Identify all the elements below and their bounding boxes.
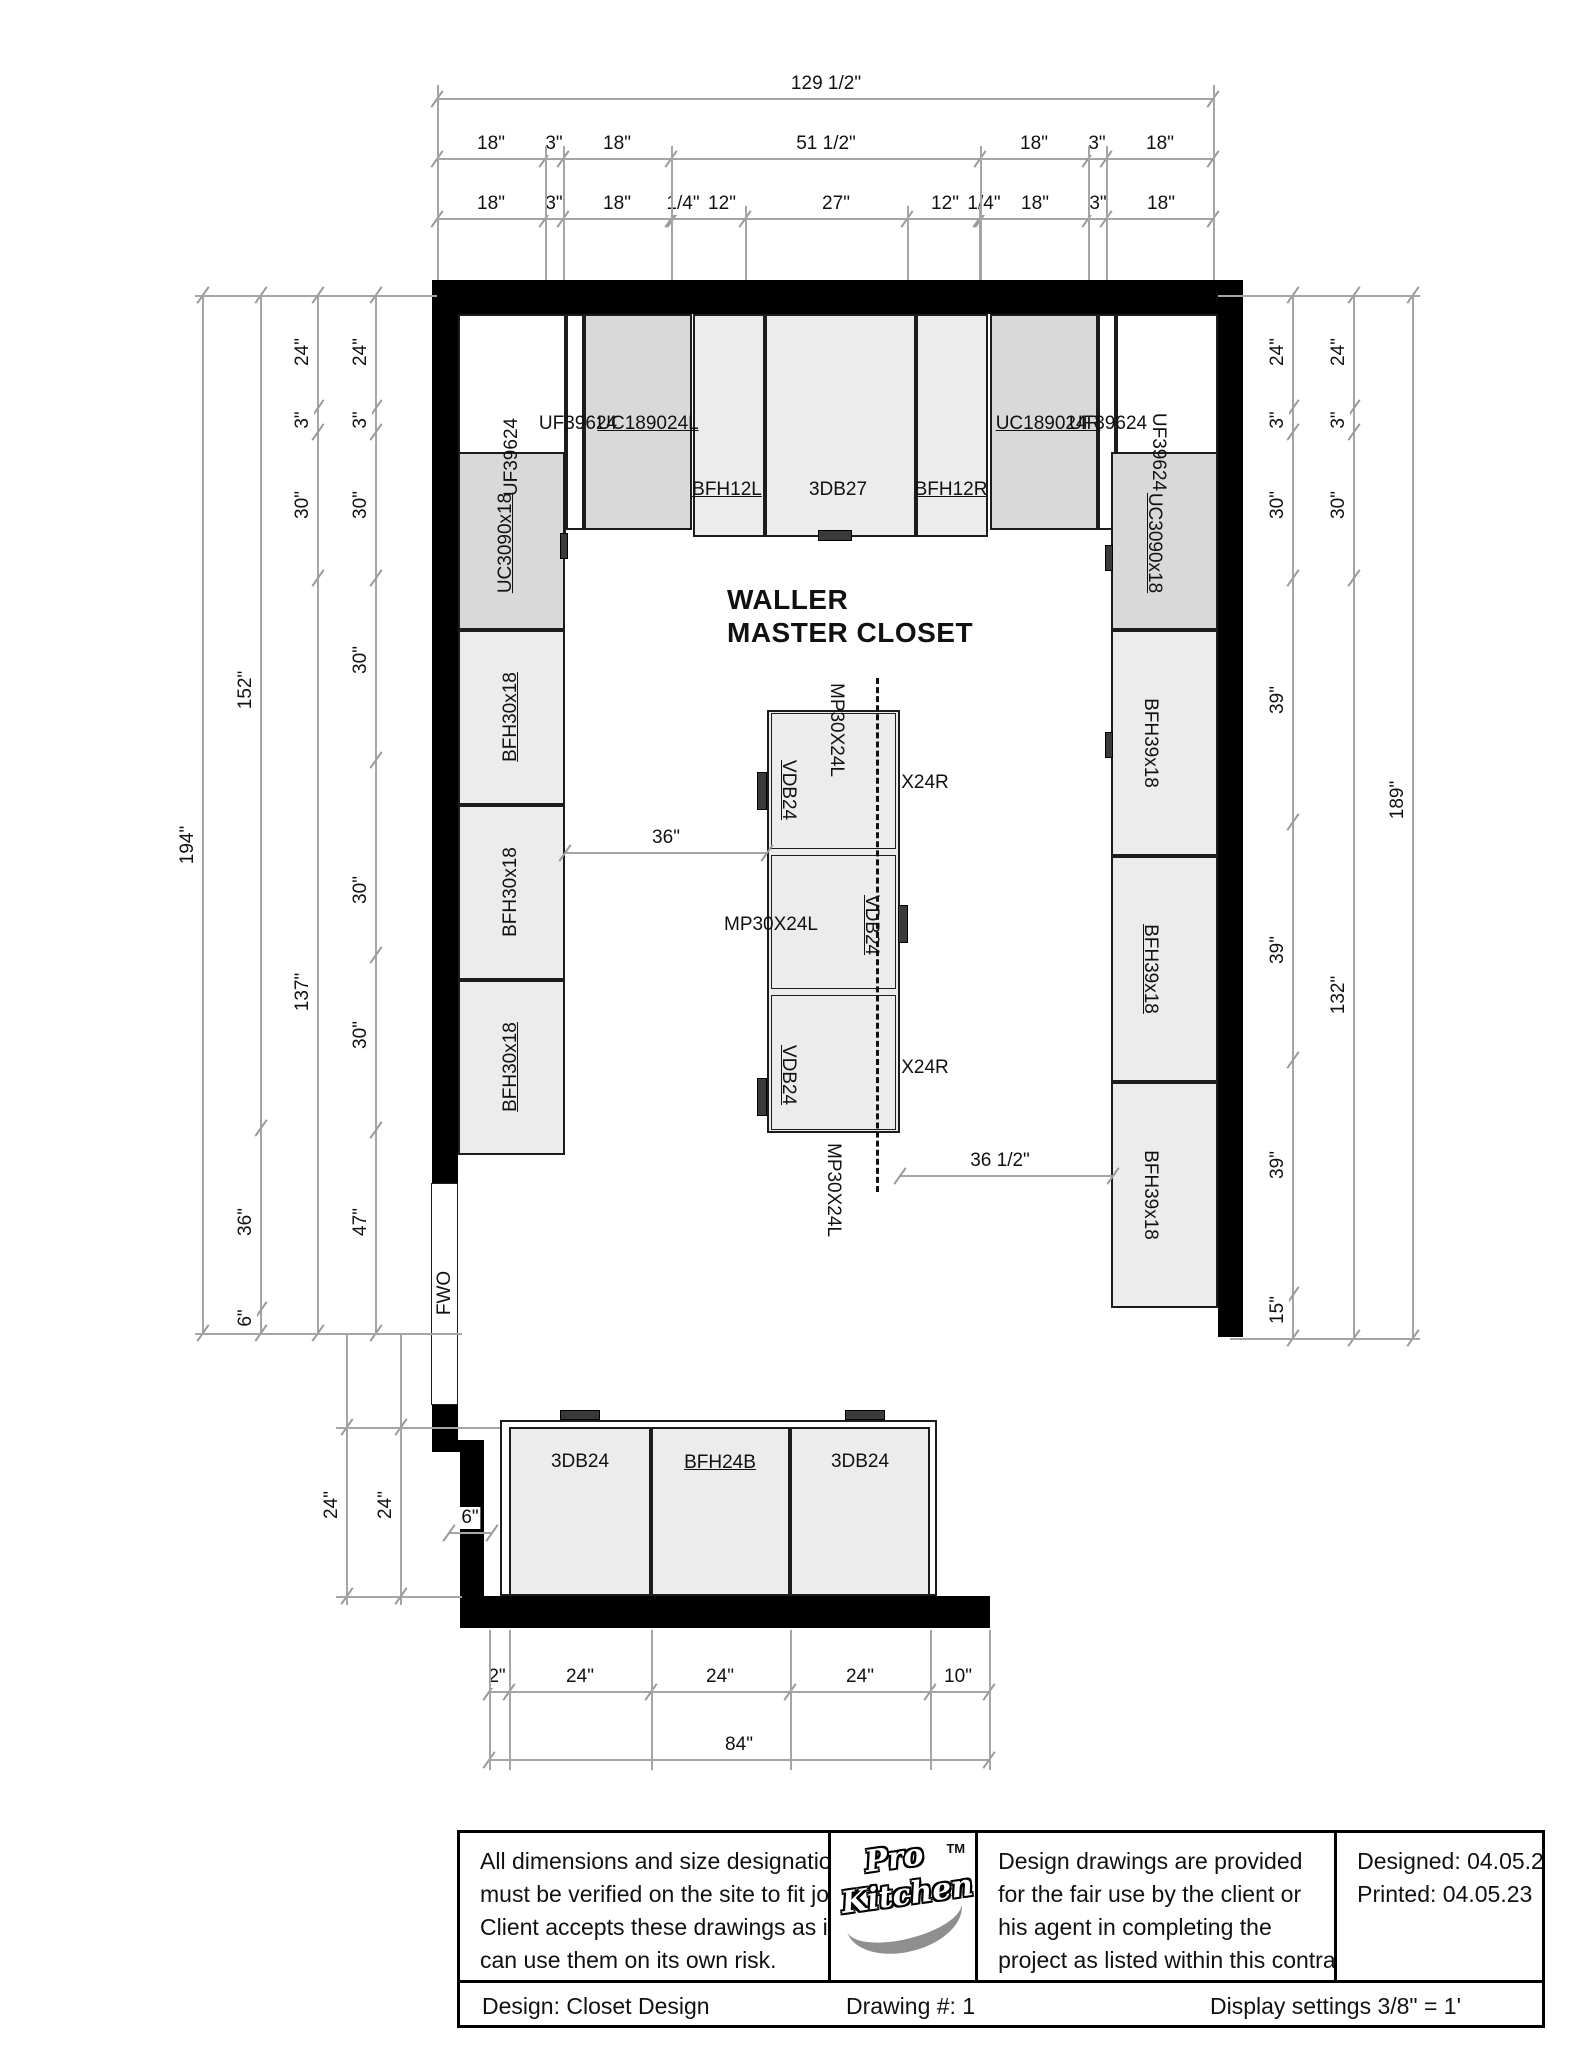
dimension-label: 10" — [942, 1666, 974, 1688]
dimension-label: 18" — [601, 193, 633, 215]
cabinet-BFH39x18-1 — [1111, 630, 1218, 856]
extension-line — [745, 206, 747, 280]
extension-line — [930, 1630, 932, 1770]
drawing-number: Drawing #: 1 — [846, 1993, 975, 2020]
dimension-label: 18" — [475, 133, 507, 155]
extension-line — [671, 146, 673, 280]
cabinet-label: BFH39x18 — [1139, 924, 1161, 1014]
cabinet-label: BFH39x18 — [1139, 1150, 1161, 1240]
dimension-label: 39" — [1267, 934, 1289, 966]
cabinet-label: X24R — [901, 1057, 949, 1079]
closet-floor-plan: UF39624UC189024LUC189024RUF39624BFH12L3D… — [0, 0, 1583, 2048]
disclaimer-text: All dimensions and size designations mus… — [460, 1833, 828, 1977]
dimension-line — [489, 1759, 989, 1761]
extension-line — [989, 1630, 991, 1770]
disclaimer-line: All dimensions and size designations — [480, 1845, 828, 1878]
dimension-label: 24" — [1328, 336, 1350, 368]
cabinet-BFH39x18-2 — [1111, 856, 1218, 1082]
logo-text-pro: Pro — [863, 1837, 926, 1880]
dimension-label: 30" — [350, 644, 372, 676]
cabinet-handle — [1105, 732, 1113, 758]
extension-line — [195, 295, 437, 297]
wall — [460, 1596, 990, 1628]
dimension-label: 3" — [292, 409, 314, 430]
cabinet-label: 3DB24 — [551, 1451, 609, 1473]
cabinet-label: UC3090x18 — [495, 493, 517, 593]
title-block: All dimensions and size designations mus… — [457, 1830, 1545, 2028]
dimension-label: 3" — [1328, 409, 1350, 430]
dimension-label: 24" — [564, 1666, 596, 1688]
extension-line — [1218, 295, 1420, 297]
printed-date: Printed: 04.05.23 — [1357, 1878, 1542, 1911]
dimension-label: 24" — [1267, 336, 1289, 368]
room-title: WALLER MASTER CLOSET — [727, 583, 973, 649]
dimension-label: 47" — [350, 1206, 372, 1238]
dimension-label: 12" — [706, 193, 738, 215]
cabinet-label: MP30X24L — [825, 683, 847, 777]
cabinet-BFH39x18-3 — [1111, 1082, 1218, 1308]
dimension-label: 6" — [235, 1307, 257, 1328]
dimension-label: 36" — [235, 1206, 257, 1238]
dimension-label: 36" — [650, 827, 682, 849]
extension-line — [545, 146, 547, 280]
dimension-label: 15" — [1267, 1294, 1289, 1326]
dimension-line — [1412, 295, 1414, 1338]
dimension-label: 189" — [1387, 779, 1409, 821]
cabinet-label: MP30X24L — [724, 914, 818, 936]
dimension-line — [437, 158, 1213, 160]
dimension-label: 30" — [350, 489, 372, 521]
dimension-label: 1/4" — [965, 193, 1002, 215]
cabinet-label: BFH30x18 — [500, 1022, 522, 1112]
extension-line — [489, 1630, 491, 1770]
wall — [1218, 280, 1243, 1337]
disclaimer-line: can use them on its own risk. — [480, 1944, 828, 1977]
wall — [432, 280, 1243, 314]
designed-date: Designed: 04.05.2 — [1357, 1845, 1542, 1878]
dimension-label: 137" — [292, 971, 314, 1013]
dimension-label: 1/4" — [664, 193, 701, 215]
cabinet-label: VDB24 — [777, 760, 799, 820]
title-block-row1: All dimensions and size designations mus… — [460, 1833, 1542, 1980]
cabinet-label: BFH30x18 — [500, 847, 522, 937]
extension-line — [563, 146, 565, 280]
dimension-line — [375, 295, 377, 1333]
dimension-label: 3" — [1086, 133, 1107, 155]
extension-line — [336, 1596, 462, 1598]
extension-line — [979, 206, 981, 280]
provision-line: his agent in completing the — [998, 1911, 1334, 1944]
cabinet-label: UC189024L — [597, 413, 698, 435]
cabinet-label: UF39624 — [1069, 413, 1147, 435]
dimension-line — [1353, 295, 1355, 1338]
dimension-line — [449, 1532, 492, 1534]
cabinet-label: BFH39x18 — [1139, 698, 1161, 788]
design-name: Design: Closet Design — [482, 1993, 710, 2020]
dimension-label: 18" — [1144, 133, 1176, 155]
cabinet-handle — [757, 1078, 767, 1116]
dimension-label: 12" — [929, 193, 961, 215]
dimension-label: 39" — [1267, 684, 1289, 716]
extension-line — [790, 1630, 792, 1770]
dimension-label: 18" — [475, 193, 507, 215]
dimension-line — [260, 295, 262, 1333]
extension-line — [1106, 146, 1108, 280]
cabinet-label: 3DB27 — [809, 479, 867, 501]
dimension-label: 24" — [375, 1489, 397, 1521]
disclaimer-line: Client accepts these drawings as is a — [480, 1911, 828, 1944]
dates-cell: Designed: 04.05.2 Printed: 04.05.23 — [1337, 1833, 1542, 1980]
dimension-line — [900, 1175, 1113, 1177]
provision-line: Design drawings are provided — [998, 1845, 1334, 1878]
extension-line — [1230, 1338, 1420, 1340]
dimension-label: 152" — [235, 669, 257, 711]
dimension-label: 51 1/2" — [794, 133, 858, 155]
dimension-label: 24" — [350, 336, 372, 368]
extension-line — [195, 1333, 462, 1335]
dimension-label: 30" — [1328, 489, 1350, 521]
title-block-row2: Design: Closet Design Drawing #: 1 Displ… — [460, 1980, 1542, 2028]
dimension-label: 194" — [177, 824, 199, 866]
cabinet-handle — [560, 533, 568, 559]
dimension-label: 18" — [1018, 133, 1050, 155]
trademark-symbol: TM — [946, 1841, 965, 1856]
wall — [432, 280, 458, 1183]
cabinet-handle — [845, 1410, 885, 1420]
cabinet-handle — [1105, 545, 1113, 571]
provision-text: Design drawings are provided for the fai… — [978, 1833, 1334, 1977]
cabinet-handle — [818, 530, 852, 541]
room-title-line1: WALLER — [727, 583, 973, 616]
extension-line — [336, 1427, 500, 1429]
dimension-label: 30" — [350, 874, 372, 906]
dimension-label: 36 1/2" — [968, 1150, 1032, 1172]
dimension-label: 132" — [1328, 974, 1350, 1016]
dimension-label: 24" — [704, 1666, 736, 1688]
cabinet-label: BFH30x18 — [500, 672, 522, 762]
dimension-line — [400, 1333, 402, 1605]
cabinet-label: VDB24 — [777, 1045, 799, 1105]
dimension-label: 3" — [543, 133, 564, 155]
display-settings: Display settings 3/8" = 1' — [1210, 1993, 1461, 2020]
dimension-label: 3" — [1267, 409, 1289, 430]
prokitchen-logo: Pro Kitchen TM — [831, 1833, 978, 1980]
dimension-label: 18" — [1145, 193, 1177, 215]
disclaimer-cell: All dimensions and size designations mus… — [460, 1833, 831, 1980]
dimension-line — [437, 218, 1213, 220]
provision-line: for the fair use by the client or — [998, 1878, 1334, 1911]
dimension-line — [202, 295, 204, 1333]
extension-line — [1213, 85, 1215, 280]
cabinet-handle — [560, 1410, 600, 1420]
cabinet-label: MP30X24L — [822, 1143, 844, 1237]
dimension-label: 24" — [292, 336, 314, 368]
cabinet-BFH12L — [693, 314, 765, 537]
cabinet-label: UF39624 — [501, 418, 523, 496]
cabinet-label: BFH12R — [915, 479, 988, 501]
provision-cell: Design drawings are provided for the fai… — [978, 1833, 1337, 1980]
dimension-label: 3" — [543, 193, 564, 215]
extension-line — [651, 1630, 653, 1770]
extension-line — [1088, 146, 1090, 280]
dimension-line — [489, 1691, 989, 1693]
cabinet-label: FWO — [434, 1271, 456, 1315]
cabinet-handle — [757, 772, 767, 810]
disclaimer-line: must be verified on the site to fit job — [480, 1878, 828, 1911]
cabinet-3DB27 — [765, 314, 916, 537]
provision-line: project as listed within this contract — [998, 1944, 1334, 1977]
dimension-label: 30" — [292, 489, 314, 521]
dimension-label: 18" — [601, 133, 633, 155]
dimension-label: 39" — [1267, 1149, 1289, 1181]
dimension-label: 6" — [459, 1507, 480, 1529]
room-title-line2: MASTER CLOSET — [727, 616, 973, 649]
extension-line — [437, 85, 439, 280]
dimension-label: 24" — [844, 1666, 876, 1688]
dimension-line — [1292, 295, 1294, 1338]
cabinet-label: VDB24 — [860, 895, 882, 955]
dimension-label: 3" — [350, 409, 372, 430]
cabinet-label: X24R — [901, 772, 949, 794]
dimension-line — [437, 98, 1213, 100]
dimension-line — [565, 852, 767, 854]
dimension-label: 27" — [820, 193, 852, 215]
cabinet-label: 3DB24 — [831, 1451, 889, 1473]
dimension-label: 84" — [723, 1734, 755, 1756]
dimension-label: 30" — [350, 1019, 372, 1051]
cabinet-label: UC3090x18 — [1143, 493, 1165, 593]
cabinet-label: UF39624 — [1147, 413, 1169, 491]
dates-text: Designed: 04.05.2 Printed: 04.05.23 — [1337, 1833, 1542, 1911]
cabinet-BFH12R — [916, 314, 988, 537]
cabinet-label: BFH24B — [684, 1452, 756, 1474]
extension-line — [509, 1630, 511, 1770]
dimension-label: 18" — [1019, 193, 1051, 215]
extension-line — [907, 206, 909, 280]
dimension-label: 24" — [321, 1489, 343, 1521]
dimension-label: 30" — [1267, 489, 1289, 521]
cabinet-handle — [898, 905, 908, 943]
dimension-label: 129 1/2" — [789, 73, 863, 95]
cabinet-label: BFH12L — [692, 479, 762, 501]
dimension-line — [346, 1333, 348, 1605]
dimension-line — [317, 295, 319, 1333]
